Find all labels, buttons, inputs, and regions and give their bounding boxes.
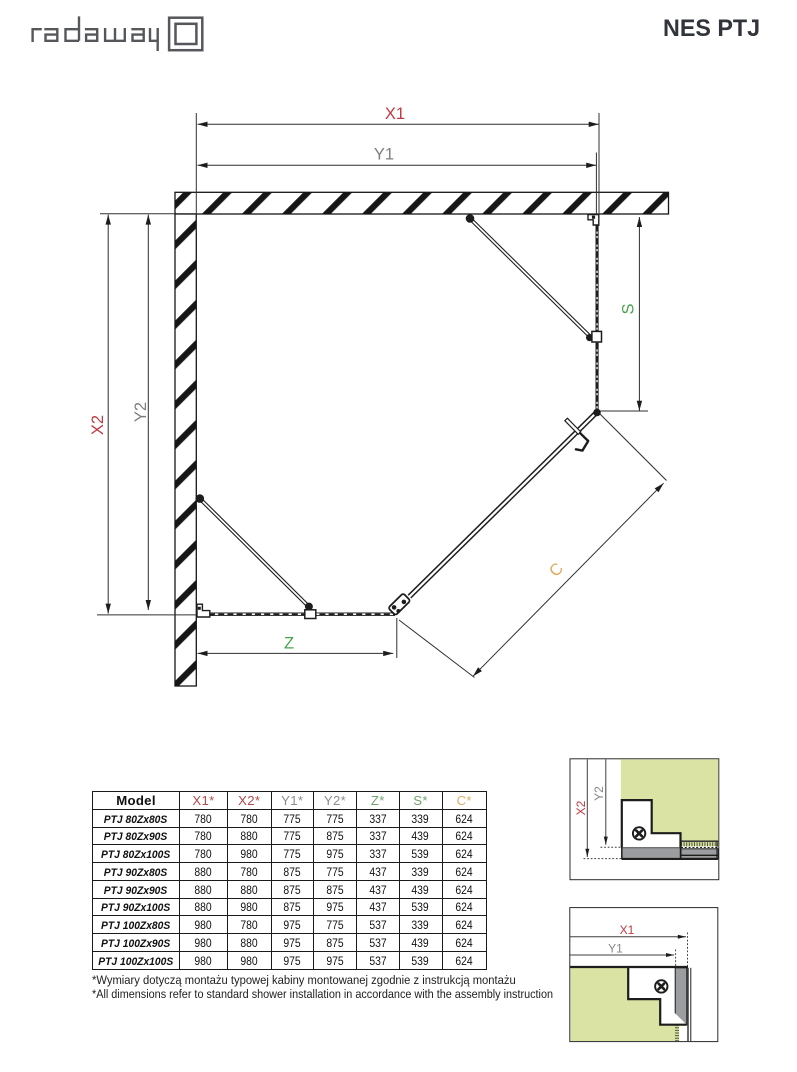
svg-text:X1: X1	[385, 105, 405, 123]
svg-text:X2: X2	[89, 415, 107, 435]
svg-text:S: S	[620, 303, 638, 314]
svg-text:Y1: Y1	[374, 146, 394, 164]
svg-text:Y1: Y1	[608, 941, 623, 955]
svg-text:Y2: Y2	[132, 402, 150, 422]
svg-text:Z: Z	[284, 635, 294, 653]
svg-text:X1: X1	[620, 923, 635, 937]
svg-text:Y2: Y2	[592, 786, 606, 801]
svg-text:X2: X2	[574, 800, 588, 815]
svg-text:C: C	[546, 559, 567, 580]
